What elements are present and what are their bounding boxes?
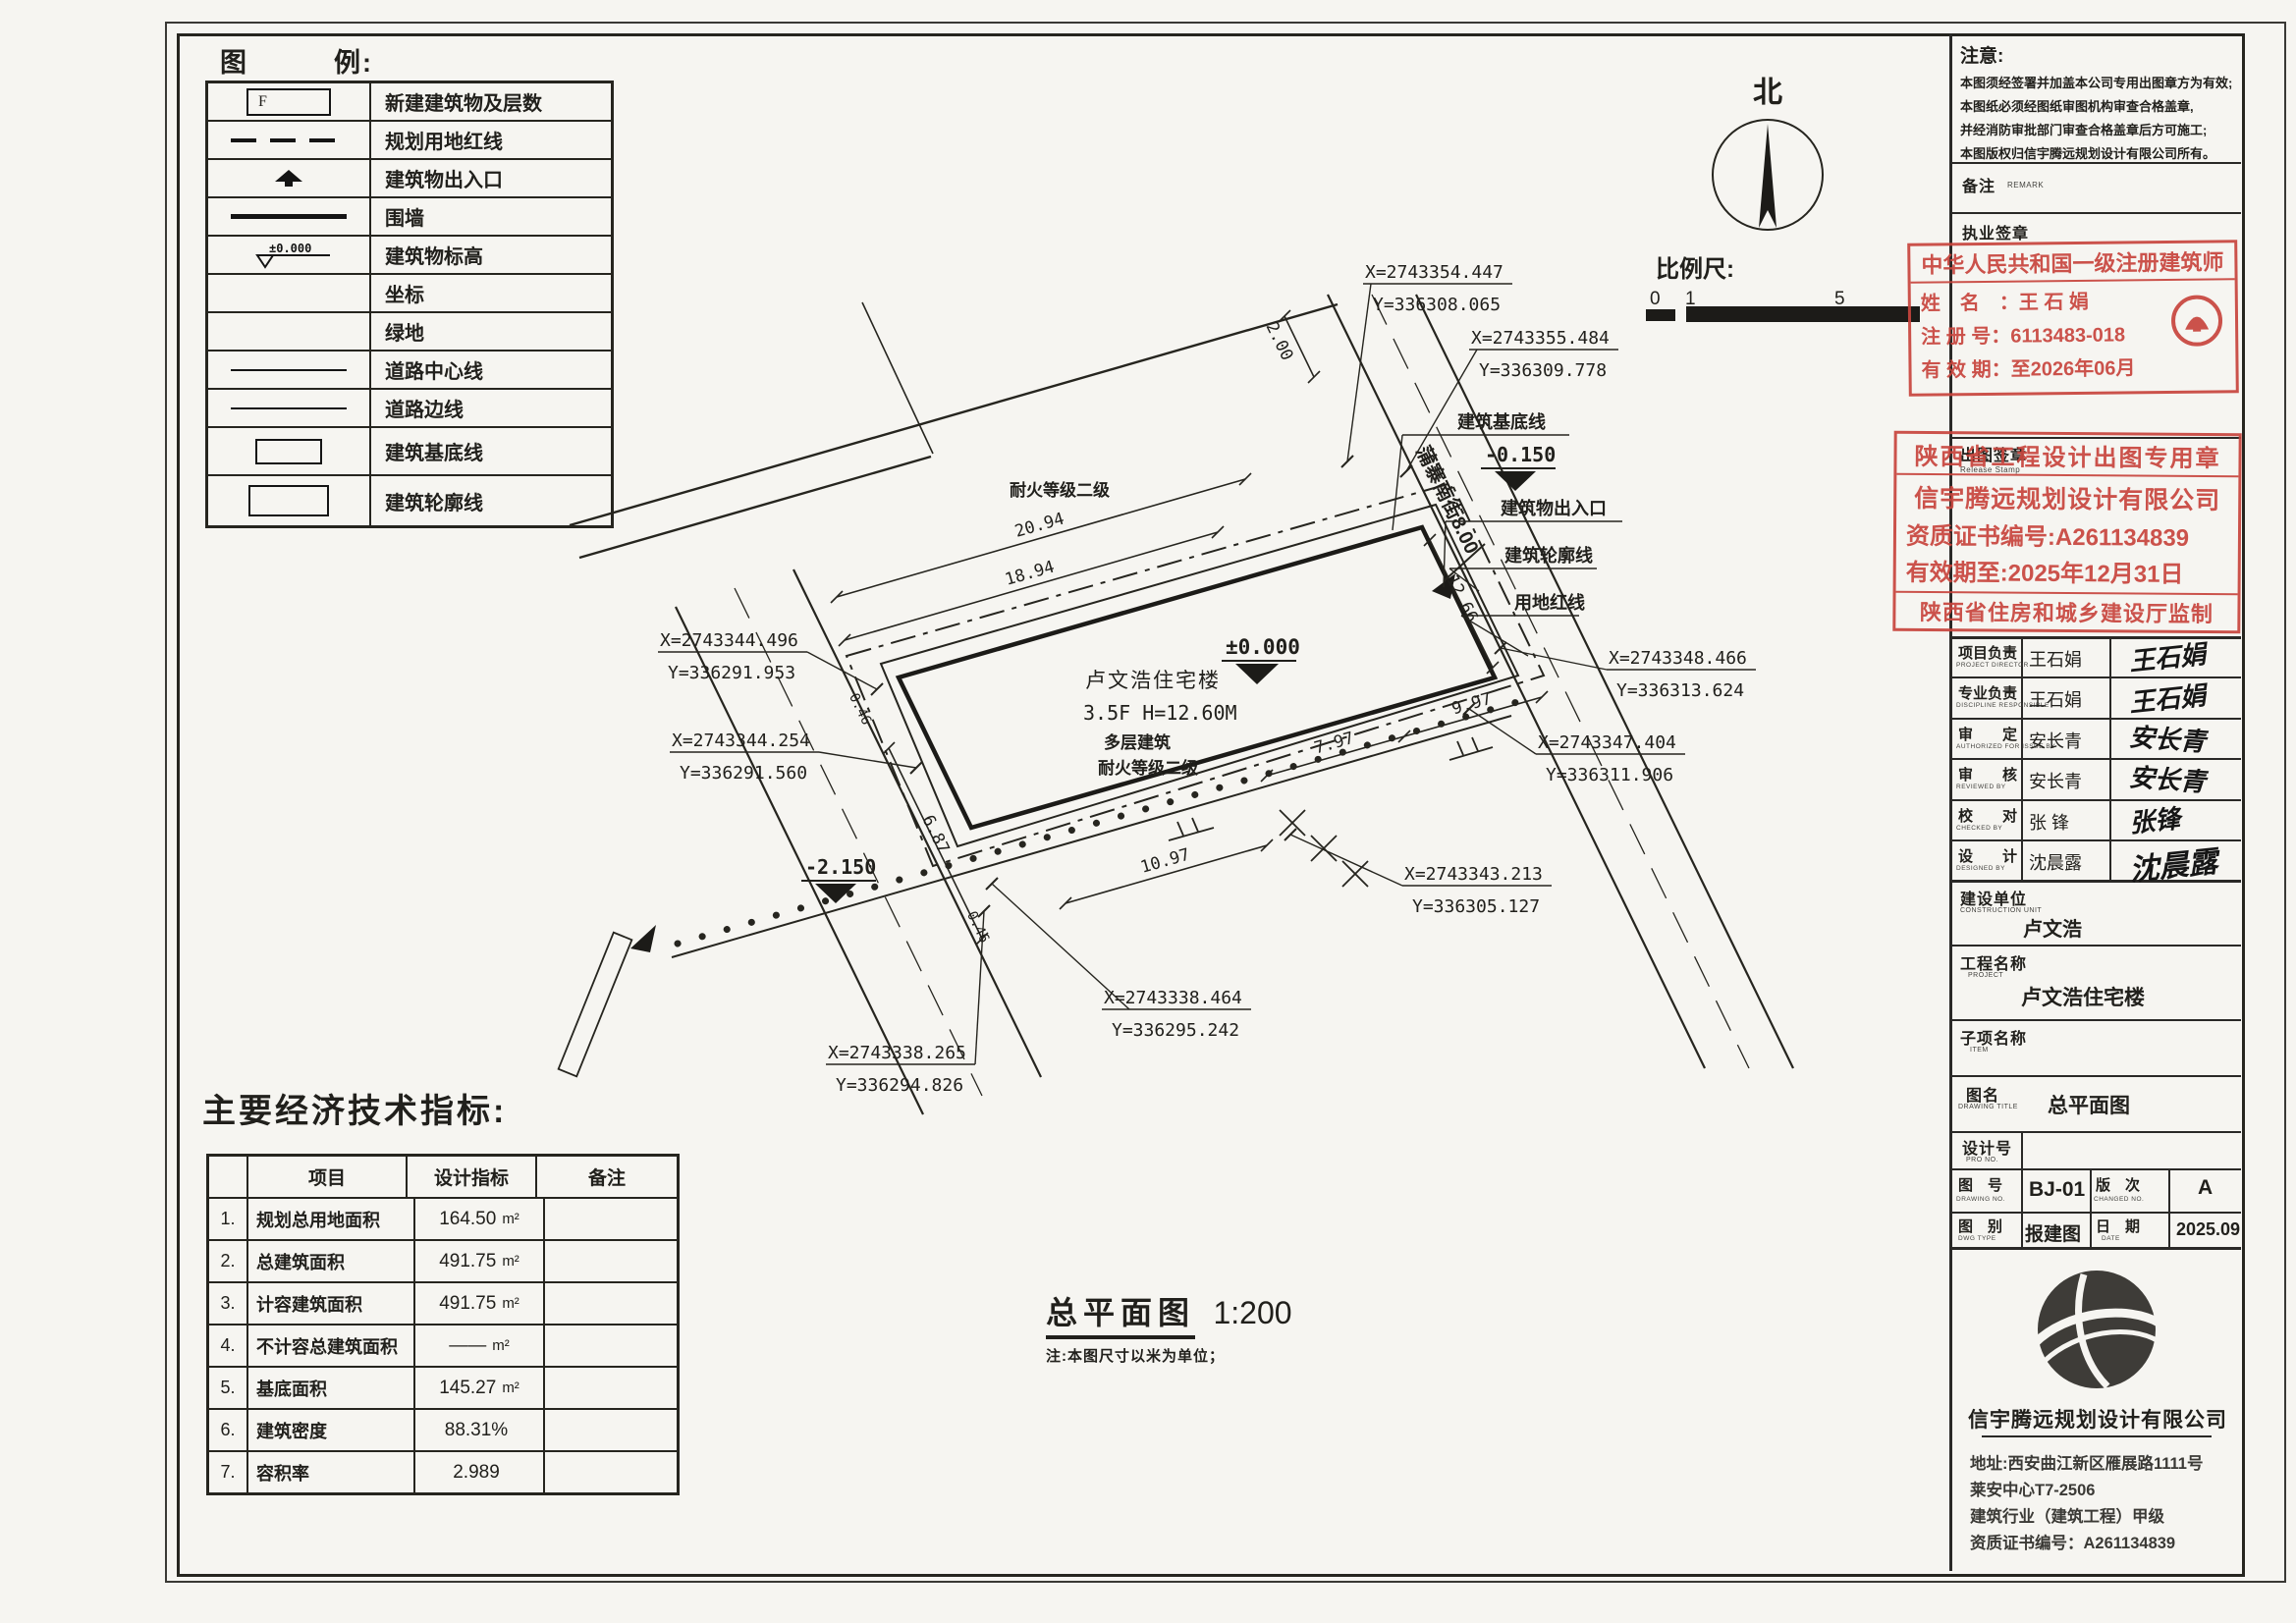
stamp1-name-label: 姓 名 ：	[1921, 293, 2019, 315]
role-label: 审 定	[1958, 724, 2017, 744]
stamp2-company: 信宇腾远规划设计有限公司	[1896, 479, 2238, 516]
sub-item-sub: ITEM	[1970, 1047, 1989, 1054]
entrance-arrow-icon	[272, 168, 305, 189]
legend-row: 道路中心线	[208, 352, 611, 390]
role-signature: 安长青	[2128, 757, 2207, 798]
company-logo-icon	[2025, 1261, 2168, 1404]
building-fire-rating: 耐火等级二级	[1098, 758, 1198, 778]
legend-label: 绿地	[371, 313, 611, 350]
road-centerline-icon	[231, 369, 347, 371]
econ-row: 3. 计容建筑面积 491.75m²	[209, 1283, 677, 1325]
callout-y: Y=336313.624	[1616, 680, 1744, 701]
legend-row: F 新建建筑物及层数	[208, 83, 611, 122]
design-no-sub: PRO NO.	[1966, 1157, 1998, 1163]
revision-value: A	[2198, 1176, 2213, 1200]
road-edge-icon	[231, 407, 347, 409]
role-signature: 张锋	[2127, 798, 2182, 839]
econ-row-item: 总建筑面积	[248, 1241, 415, 1281]
north-arrow: 北	[1713, 77, 1823, 230]
legend-label: 围墙	[371, 198, 611, 235]
drawing-sheet: ±0.000 -0.150 -2.150 卢文浩住宅楼 3.5F H=12.60…	[0, 0, 2296, 1623]
econ-header-remark: 备注	[537, 1157, 677, 1197]
plan-caption: 总平面图 1:200 注:本图尺寸以米为单位；	[1046, 1288, 1292, 1366]
econ-row-item: 计容建筑面积	[248, 1283, 415, 1324]
role-name: 王石娟	[2029, 646, 2082, 672]
callout-y: Y=336308.065	[1373, 295, 1501, 315]
dwg-type-sub: DWG TYPE	[1958, 1235, 1996, 1242]
stamp2-valid: 有效期至:2025年12月31日	[1896, 553, 2238, 589]
callout-x: X=2743347.404	[1538, 732, 1676, 753]
remark-label: 备注	[1962, 173, 1995, 196]
callout-y: Y=336309.778	[1479, 360, 1607, 381]
econ-row-no: 7.	[209, 1452, 248, 1492]
scalebar-0: 0	[1650, 289, 1661, 309]
role-sub: REVIEWED BY	[1956, 784, 2006, 790]
econ-row-unit: m²	[502, 1380, 519, 1396]
stamp1-name-value: 王 石 娟	[2019, 292, 2089, 314]
elevation-015-label: -0.150	[1485, 443, 1556, 466]
north-label: 北	[1753, 77, 1782, 109]
role-name: 沈晨露	[2029, 849, 2082, 875]
stamp1-title: 中华人民共和国一级注册建筑师	[1910, 243, 2234, 283]
drawing-no-sub: DRAWING NO.	[1956, 1196, 2005, 1203]
callout-x: X=2743348.466	[1609, 648, 1747, 669]
company-cert-no: 资质证书编号：A261134839	[1970, 1531, 2203, 1557]
callout-y: Y=336291.953	[668, 663, 795, 683]
role-sub: CHECKED BY	[1956, 825, 2002, 832]
company-address-2: 莱安中心T7-2506	[1970, 1478, 2203, 1504]
callout-y: Y=336291.560	[680, 763, 807, 784]
dim-200: 2.00	[1262, 319, 1297, 364]
elevation-215-label: -2.150	[805, 855, 876, 879]
callout-5: X=2743343.213 Y=336305.127	[1285, 829, 1552, 917]
legend-row: 建筑物出入口	[208, 160, 611, 198]
dim-046a: 0.46	[846, 691, 874, 728]
legend-row: ±0.000 建筑物标高	[208, 237, 611, 275]
callout-y: Y=336294.826	[836, 1075, 963, 1096]
building-name: 卢文浩住宅楼	[1085, 670, 1221, 692]
econ-header-row: 项目 设计指标 备注	[209, 1157, 677, 1199]
stamp2-authority: 陕西省住房和城乡建设厅监制	[1895, 591, 2237, 630]
remark-sub-label: REMARK	[2007, 181, 2044, 189]
date-label: 日 期	[2096, 1216, 2140, 1236]
role-label: 专业负责	[1958, 682, 2017, 703]
notes-line: 本图须经签署并加盖本公司专用出图章方为有效;	[1960, 72, 2237, 95]
notes-title: 注意:	[1960, 41, 2237, 68]
drawing-title-sub: DRAWING TITLE	[1958, 1104, 2018, 1110]
callout-x: X=2743338.265	[828, 1043, 966, 1063]
role-name: 安长青	[2029, 768, 2082, 793]
neighbor-fire-rating: 耐火等级二级	[1010, 480, 1110, 500]
notes-line: 本图版权归信宇腾远规划设计有限公司所有。	[1960, 142, 2237, 166]
econ-row: 1. 规划总用地面积 164.50m²	[209, 1199, 677, 1241]
role-name: 张 锋	[2029, 809, 2069, 835]
dim-797: 7.97	[1312, 729, 1356, 759]
dimension-labels: 20.94 18.94 2.00 12.66 7.97 9.97 10.97 6…	[846, 319, 1494, 946]
stamp1-reg-value: 6113483-018	[2010, 324, 2125, 347]
drawing-no-value: BJ-01	[2029, 1178, 2085, 1202]
dim-2094: 20.94	[1012, 510, 1066, 542]
econ-row-no: 4.	[209, 1325, 248, 1366]
legend-label: 道路中心线	[371, 352, 611, 388]
elevation-mark-icon: ±0.000	[240, 240, 338, 271]
econ-row-value: 145.27	[439, 1378, 496, 1399]
legend-row: 坐标	[208, 275, 611, 313]
role-signature: 沈晨露	[2127, 837, 2219, 889]
wall-line-icon	[231, 214, 347, 219]
legend-label: 建筑基底线	[371, 428, 611, 474]
dim-1097: 10.97	[1138, 845, 1192, 878]
econ-row: 2. 总建筑面积 491.75m²	[209, 1241, 677, 1283]
econ-row-item: 基底面积	[248, 1368, 415, 1408]
callout-y: Y=336305.127	[1412, 896, 1540, 917]
econ-row-item: 建筑密度	[248, 1410, 415, 1450]
legend-table: F 新建建筑物及层数 规划用地红线 建筑物出入口 围墙 ±0.000	[205, 81, 614, 528]
drawing-title-value: 总平面图	[2048, 1090, 2130, 1119]
callout-x: X=2743354.447	[1365, 262, 1503, 283]
sub-item-label: 子项名称	[1960, 1025, 2027, 1049]
project-name-value: 卢文浩住宅楼	[2021, 982, 2145, 1011]
role-sub: DESIGNED BY	[1956, 865, 2005, 872]
notes-line: 并经消防审批部门审查合格盖章后方可施工;	[1960, 119, 2237, 142]
econ-row: 4. 不计容总建筑面积 ——m²	[209, 1325, 677, 1368]
callout-x: X=2743355.484	[1471, 328, 1610, 349]
red-line-icon	[231, 138, 347, 142]
legend-label: 建筑物出入口	[371, 160, 611, 196]
econ-row-unit: m²	[492, 1337, 510, 1354]
econ-row-no: 1.	[209, 1199, 248, 1239]
econ-row-value: 2.989	[453, 1462, 500, 1484]
revision-label: 版 次	[2096, 1174, 2140, 1195]
construction-unit-value: 卢文浩	[2023, 913, 2082, 942]
date-sub: DATE	[2102, 1235, 2120, 1242]
elevation-symbol-text: ±0.000	[269, 242, 311, 255]
econ-header-value: 设计指标	[408, 1157, 537, 1197]
neighbor-lines	[570, 302, 1338, 558]
feature-label: 建筑轮廓线	[1504, 545, 1593, 566]
legend-row: 规划用地红线	[208, 122, 611, 160]
contour-line-icon	[248, 485, 329, 516]
stamp1-reg-label: 注 册 号：	[1921, 326, 2010, 349]
econ-row-no: 6.	[209, 1410, 248, 1450]
role-sub: PROJECT DIRECTOR	[1956, 662, 2029, 669]
drawing-no-label: 图 号	[1958, 1174, 2002, 1195]
release-stamp: 陕西省工程设计出图专用章 信宇腾远规划设计有限公司 资质证书编号:A261134…	[1892, 431, 2241, 633]
elevation-minus-015: -0.150	[1481, 443, 1556, 491]
econ-row-no: 3.	[209, 1283, 248, 1324]
legend-row: 建筑基底线	[208, 428, 611, 476]
stamp2-cert: 资质证书编号:A261134839	[1896, 516, 2238, 553]
role-label: 设 计	[1958, 845, 2017, 866]
econ-table: 项目 设计指标 备注 1. 规划总用地面积 164.50m² 2. 总建筑面积 …	[206, 1154, 680, 1495]
role-label: 校 对	[1958, 805, 2017, 826]
callout-x: X=2743344.496	[660, 630, 798, 651]
callout-4: X=2743347.404 Y=336311.906	[1463, 703, 1685, 785]
legend-label: 建筑物标高	[371, 237, 611, 273]
callout-6: X=2743338.464 Y=336295.242	[986, 878, 1251, 1041]
callout-y: Y=336311.906	[1546, 765, 1673, 785]
company-grade: 建筑行业（建筑工程）甲级	[1970, 1504, 2203, 1531]
econ-row-no: 2.	[209, 1241, 248, 1281]
scalebar-label: 比例尺:	[1656, 256, 1734, 283]
project-name-label: 工程名称	[1960, 950, 2027, 974]
econ-row-item: 容积率	[248, 1452, 415, 1492]
notes-section: 注意: 本图须经签署并加盖本公司专用出图章方为有效; 本图纸必须经图纸审图机构审…	[1960, 41, 2237, 166]
north-needle-icon	[1759, 124, 1777, 228]
scalebar-1: 1	[1685, 289, 1696, 309]
practice-seal-label: 执业签章	[1962, 220, 2029, 243]
econ-row-no: 5.	[209, 1368, 248, 1408]
company-address-1: 地址:西安曲江新区雁展路1111号	[1970, 1451, 2203, 1478]
feature-label: 用地红线	[1514, 592, 1585, 613]
legend-label: 坐标	[371, 275, 611, 311]
design-no-label: 设计号	[1962, 1135, 2012, 1159]
elevation-zero: ±0.000	[1222, 635, 1300, 684]
econ-row-value: ——	[449, 1335, 486, 1357]
econ-row-item: 不计容总建筑面积	[248, 1325, 415, 1366]
role-name: 安长青	[2029, 728, 2082, 753]
econ-row-item: 规划总用地面积	[248, 1199, 415, 1239]
construction-unit-label: 建设单位	[1960, 886, 2027, 909]
callout-x: X=2743343.213	[1404, 864, 1543, 885]
legend-label: 规划用地红线	[371, 122, 611, 158]
econ-table-title: 主要经济技术指标:	[202, 1084, 507, 1132]
legend-row: 围墙	[208, 198, 611, 237]
econ-row-unit: m²	[502, 1211, 519, 1227]
callout-x: X=2743344.254	[672, 730, 810, 751]
econ-row-value: 491.75	[439, 1251, 496, 1272]
building-spec: 3.5F H=12.60M	[1083, 701, 1237, 725]
caption-title: 总平面图	[1046, 1295, 1195, 1339]
econ-row-value: 88.31%	[445, 1420, 508, 1441]
base-line-icon	[255, 439, 322, 464]
company-name: 信宇腾远规划设计有限公司	[1954, 1404, 2241, 1434]
hatch-marks	[1280, 810, 1368, 887]
road-arrow-icon	[630, 925, 656, 952]
legend-title: 图 例:	[220, 41, 373, 80]
dwg-type-value: 报建图	[2025, 1219, 2081, 1246]
scale-bar: 比例尺: 0 1 5	[1646, 256, 1920, 322]
architect-seal-icon	[2168, 292, 2226, 350]
econ-row: 6. 建筑密度 88.31%	[209, 1410, 677, 1452]
feature-label: 建筑基底线	[1457, 411, 1546, 432]
stamp1-valid-value: 至2026年06月	[2011, 357, 2136, 380]
role-label: 审 核	[1958, 764, 2017, 784]
caption-note: 注:本图尺寸以米为单位；	[1046, 1345, 1292, 1366]
scalebar-5: 5	[1834, 289, 1845, 309]
dwg-type-label: 图 别	[1958, 1216, 2002, 1236]
legend-row: 建筑轮廓线	[208, 476, 611, 525]
elevation-minus-215: -2.150	[801, 855, 876, 903]
econ-row-value: 164.50	[439, 1209, 496, 1230]
legend-label: 新建建筑物及层数	[371, 83, 611, 120]
notes-line: 本图纸必须经图纸审图机构审查合格盖章,	[1960, 95, 2237, 119]
econ-row-unit: m²	[502, 1253, 519, 1270]
project-name-sub: PROJECT	[1968, 972, 2003, 979]
stamp1-valid-label: 有 效 期：	[1921, 359, 2010, 382]
callout-3: X=2743348.466 Y=336313.624	[1495, 642, 1756, 701]
stamp2-title: 陕西省工程设计出图专用章	[1896, 434, 2238, 477]
drawing-title-label: 图名	[1966, 1082, 1999, 1106]
callout-y: Y=336295.242	[1112, 1020, 1239, 1041]
feature-label: 建筑物出入口	[1501, 498, 1607, 518]
dim-1894: 18.94	[1003, 558, 1057, 590]
econ-row: 5. 基底面积 145.27m²	[209, 1368, 677, 1410]
econ-row-value: 491.75	[439, 1293, 496, 1315]
caption-scale: 1:200	[1213, 1295, 1291, 1330]
date-value: 2025.09	[2176, 1219, 2240, 1240]
callout-7: X=2743338.265 Y=336294.826	[826, 905, 990, 1096]
legend-label: 道路边线	[371, 390, 611, 426]
green-strip	[559, 933, 632, 1077]
legend-row: 道路边线	[208, 390, 611, 428]
role-name: 王石娟	[2029, 686, 2082, 712]
econ-header-item: 项目	[248, 1157, 408, 1197]
legend-label: 建筑轮廓线	[371, 476, 611, 525]
building-type: 多层建筑	[1104, 732, 1171, 752]
legend-row: 绿地	[208, 313, 611, 352]
revision-sub: CHANGED NO.	[2094, 1196, 2144, 1203]
elevation-zero-label: ±0.000	[1226, 635, 1300, 659]
new-building-icon: F	[246, 88, 331, 116]
registered-architect-stamp: 中华人民共和国一级注册建筑师 姓 名 ：王 石 娟 注 册 号：6113483-…	[1907, 240, 2239, 397]
econ-row: 7. 容积率 2.989	[209, 1452, 677, 1492]
role-label: 项目负责	[1958, 642, 2017, 663]
role-signature: 安长青	[2128, 717, 2207, 758]
econ-row-unit: m²	[502, 1295, 519, 1312]
